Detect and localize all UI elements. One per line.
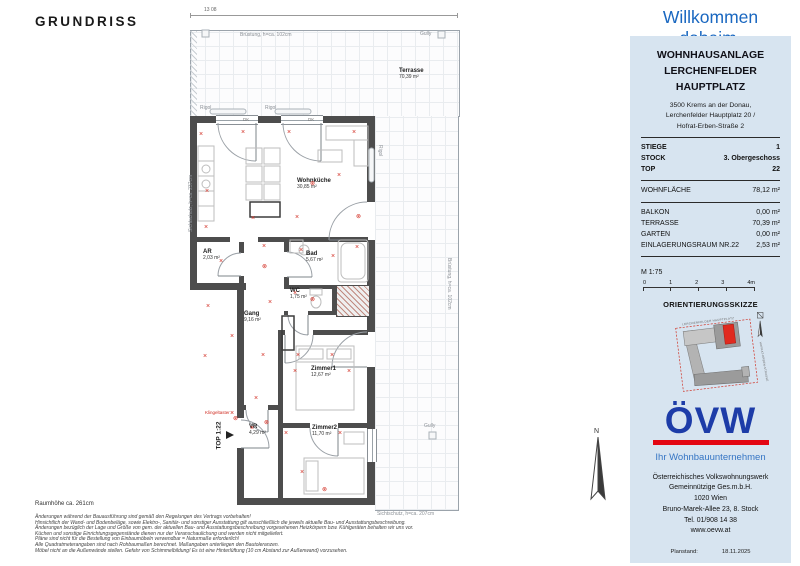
- electrical-symbol-icon: [295, 214, 299, 221]
- pillow: [299, 349, 323, 359]
- divider: [641, 202, 780, 203]
- dining-chair: [246, 184, 262, 200]
- divider: [641, 137, 780, 138]
- fine-print-line: Möbel nicht an die Außenwände stellen. G…: [35, 549, 485, 555]
- hob-icon: [202, 180, 210, 188]
- fine-print: Änderungen während der Bauausführung sin…: [35, 515, 485, 554]
- electrical-symbol-icon: [262, 243, 266, 250]
- door-arc: [332, 332, 367, 367]
- dining-chair: [264, 148, 280, 164]
- privacy-screen-label-bottom: Sichtschutz, h=ca. 207cm: [377, 512, 434, 517]
- parapet-label-top: Brüstung, h=ca. 102cm: [240, 33, 292, 38]
- wall: [313, 330, 368, 335]
- company-address: Österreichisches Volkswohnungswerk Gemei…: [641, 473, 780, 537]
- electrical-symbol-icon: [299, 247, 303, 254]
- electrical-symbol-icon: [199, 131, 203, 138]
- electrical-symbol-icon: [347, 368, 351, 375]
- wall: [278, 428, 283, 498]
- building-wing-bottom: [693, 368, 749, 389]
- electrical-symbol-icon: [337, 172, 341, 179]
- company-website: www.oevw.at: [641, 526, 780, 537]
- electrical-symbol-icon: [300, 469, 304, 476]
- highlighted-unit: [723, 324, 736, 344]
- toilet-tank: [310, 289, 322, 295]
- street-label-top: LERCHENFELDER HAUPTPLATZ: [682, 316, 734, 326]
- north-box-icon: [757, 312, 763, 318]
- wall: [258, 116, 283, 123]
- extra-row-einlagerungsraum: EINLAGERUNGSRAUM NR.22 2,53 m²: [641, 240, 780, 251]
- orientation-sketch: LERCHENFELDER HAUPTPLATZ HOFRAT-ERBEN-ST…: [641, 311, 789, 397]
- room-label-ar: AR 2,03 m²: [203, 249, 220, 262]
- room-label-bad: Bad 5,67 m²: [306, 251, 323, 264]
- north-arrow: N: [584, 424, 612, 506]
- divider: [641, 180, 780, 181]
- kitchen-unit: [198, 161, 214, 176]
- wall: [338, 423, 368, 428]
- bathtub: [338, 240, 368, 282]
- electrical-symbol-icon: [355, 244, 359, 251]
- electrical-symbol-icon: [356, 214, 361, 220]
- floorplan-page: { "header": { "title": "GRUNDRISS", "wel…: [0, 0, 800, 566]
- wall: [284, 311, 288, 315]
- shaft-hatch: [336, 285, 370, 317]
- dimension-line: [190, 15, 458, 16]
- pillow: [306, 461, 318, 491]
- electrical-symbol-icon: [206, 303, 210, 310]
- dimension-label: 13 08: [204, 7, 217, 13]
- extra-row-garten: GARTEN 0,00 m²: [641, 229, 780, 240]
- building-wing-left: [683, 330, 706, 384]
- gully-label-top: Gully: [420, 32, 431, 37]
- plan-date-label: Planstand:: [671, 549, 698, 555]
- sink-icon: [202, 165, 210, 173]
- rigol-label-2: Rigol: [265, 106, 276, 111]
- unit-row-stiege: STIEGE 1: [641, 142, 780, 153]
- window: [367, 429, 377, 462]
- orientation-title: ORIENTIERUNGSSKIZZE: [641, 300, 780, 309]
- electrical-symbol-icon: [330, 352, 334, 359]
- room-label-zimmer2: Zimmer2 11,70 m²: [312, 425, 337, 438]
- electrical-symbol-icon: [264, 420, 269, 426]
- dining-chair: [264, 166, 280, 182]
- desk: [344, 432, 364, 444]
- electrical-symbol-icon: [284, 430, 288, 437]
- building-wing-top: [683, 328, 717, 346]
- project-title: WOHNHAUSANLAGE LERCHENFELDER HAUPTPLATZ: [641, 48, 780, 95]
- wall: [237, 498, 375, 505]
- dining-chair: [246, 166, 262, 182]
- wall: [197, 237, 230, 242]
- building-wing-topright: [714, 322, 741, 349]
- parapet-label-right: Brüstung, h=ca. 102cm: [446, 258, 451, 350]
- street-label-right: HOFRAT-ERBEN-STRASSE: [758, 342, 769, 382]
- kitchen-unit: [198, 206, 214, 221]
- scale-tick-labels: 0 1 2 3 4m: [643, 280, 755, 286]
- living-area-row: WOHNFLÄCHE 78,12 m²: [641, 185, 780, 196]
- north-needle-icon: [758, 321, 760, 337]
- unit-row-top: TOP 22: [641, 164, 780, 175]
- room-label-terrasse: Terrasse 70,39 m²: [399, 68, 424, 81]
- property-line: [676, 319, 758, 391]
- extra-row-balkon: BALKON 0,00 m²: [641, 207, 780, 218]
- kitchen-unit: [198, 146, 214, 161]
- wall: [237, 448, 244, 505]
- building-step: [742, 366, 750, 377]
- wall: [278, 335, 283, 423]
- door-arc: [218, 123, 256, 161]
- electrical-symbol-icon: [268, 299, 272, 306]
- window: [281, 115, 323, 125]
- sofa: [354, 140, 368, 166]
- dining-chair: [246, 148, 262, 164]
- wall: [239, 242, 244, 253]
- door-arc: [288, 315, 308, 335]
- electrical-symbol-icon: [296, 352, 300, 359]
- entry-arrow-icon: [226, 431, 234, 439]
- electrical-symbol-icon: [241, 129, 245, 136]
- logo-block: ÖVW Ihr Wohnbauunternehmen: [641, 403, 780, 463]
- electrical-symbol-icon: [310, 297, 315, 303]
- rigol-label-3: Rigol: [377, 145, 382, 156]
- electrical-symbol-icon: [204, 224, 208, 231]
- entry-top-label: TOP 1:22: [216, 407, 223, 465]
- oevw-logo: ÖVW: [641, 403, 780, 438]
- electrical-symbol-icon: [250, 425, 254, 432]
- bathtub-inner: [341, 243, 365, 279]
- sofa: [326, 126, 368, 140]
- unit-row-stock: STOCK 3. Obergeschoss: [641, 153, 780, 164]
- project-address: 3500 Krems an der Donau, Lerchenfelder H…: [641, 101, 780, 132]
- parapet-hatch: [190, 31, 197, 116]
- room-label-zimmer1: Zimmer1 12,67 m²: [311, 366, 336, 379]
- door-arc: [329, 202, 367, 240]
- electrical-symbol-icon: [233, 416, 238, 422]
- electrical-symbol-icon: [287, 129, 291, 136]
- scale-bar: [643, 287, 755, 288]
- wall: [268, 405, 278, 410]
- electrical-symbol-icon: [262, 264, 267, 270]
- wall: [239, 276, 244, 283]
- plan-date-row: Planstand: 18.11.2025: [641, 549, 780, 555]
- doorbell-label: Klingeltaster: [205, 410, 230, 415]
- wall: [284, 242, 289, 252]
- divider: [641, 256, 780, 257]
- electrical-symbol-icon: [203, 353, 207, 360]
- plan-date-value: 18.11.2025: [722, 549, 751, 555]
- electrical-symbol-icon: [331, 253, 335, 260]
- extra-row-terrasse: TERRASSE 70,39 m²: [641, 218, 780, 229]
- page-title: GRUNDRISS: [35, 14, 139, 29]
- electrical-symbol-icon: [230, 333, 234, 340]
- window-dk-label-2: DK: [308, 117, 314, 122]
- window-dk-label-1: DK: [243, 117, 249, 122]
- window: [216, 115, 258, 125]
- rigol-label-1: Rigol: [200, 106, 211, 111]
- electrical-symbol-icon: [205, 188, 209, 195]
- electrical-symbol-icon: [261, 352, 265, 359]
- dining-chair: [264, 184, 280, 200]
- electrical-symbol-icon: [352, 129, 356, 136]
- privacy-screen-label-left: Sichtschutz, h=ca. 237cm: [189, 140, 194, 232]
- electrical-symbol-icon: [251, 215, 255, 222]
- electrical-symbol-icon: [338, 430, 342, 437]
- electrical-symbol-icon: [293, 368, 297, 375]
- wall: [367, 462, 375, 505]
- room-height-note: Raumhöhe ca. 261cm: [35, 501, 94, 507]
- coffee-table: [318, 150, 342, 162]
- wall: [367, 367, 375, 429]
- electrical-symbol-icon: [219, 258, 223, 265]
- electrical-symbol-icon: [254, 395, 258, 402]
- electrical-symbol-icon: [293, 290, 297, 297]
- electrical-symbol-icon: [310, 181, 315, 187]
- electrical-symbol-icon: [322, 487, 327, 493]
- north-label: N: [594, 428, 599, 435]
- wall: [237, 405, 246, 410]
- bed: [304, 458, 364, 494]
- info-panel: WOHNHAUSANLAGE LERCHENFELDER HAUPTPLATZ …: [630, 36, 791, 563]
- gully-label-bottom: Gully: [424, 424, 435, 429]
- scale-label: M 1:75: [641, 269, 780, 276]
- wall: [367, 116, 375, 202]
- logo-tagline: Ihr Wohnbauunternehmen: [641, 452, 780, 463]
- room-label-gang: Gang 9,16 m²: [244, 311, 261, 324]
- wall: [237, 283, 244, 418]
- wall: [258, 237, 368, 242]
